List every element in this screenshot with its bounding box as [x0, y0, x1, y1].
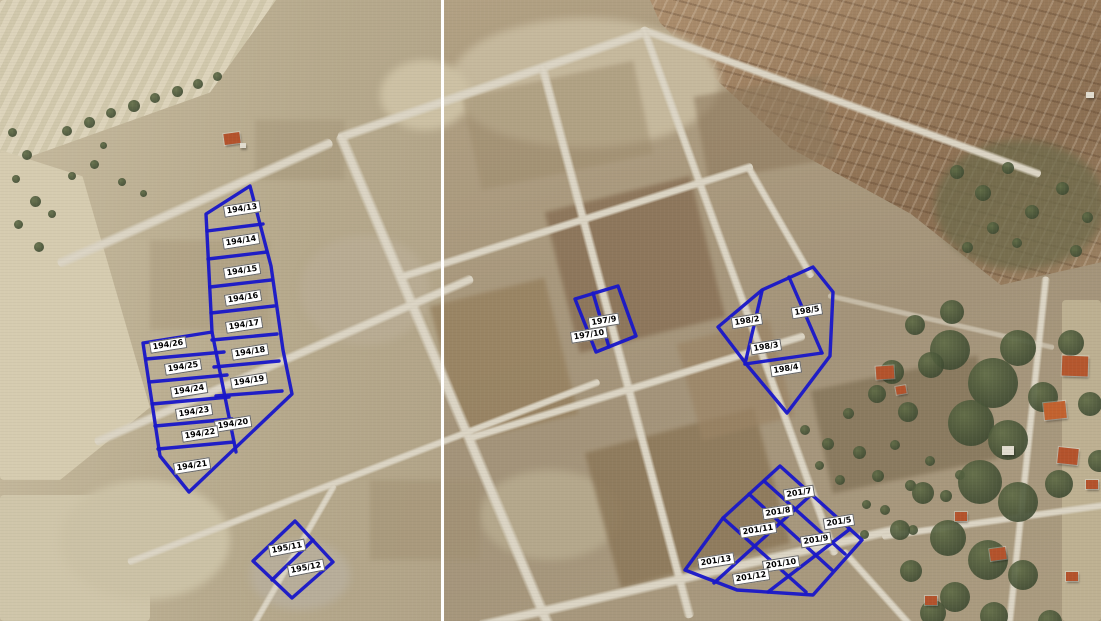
building-red-roof	[989, 547, 1007, 561]
tree	[822, 438, 834, 450]
tree	[30, 196, 41, 207]
tree	[918, 352, 944, 378]
building-red-roof	[1043, 401, 1067, 420]
building-red-roof	[1062, 356, 1089, 377]
tree	[925, 456, 935, 466]
tree	[1025, 205, 1039, 219]
building-red-roof	[1057, 447, 1079, 465]
tree	[868, 385, 886, 403]
building-red-roof	[223, 132, 240, 145]
tree	[940, 490, 952, 502]
tree	[1058, 330, 1084, 356]
tree	[890, 440, 900, 450]
tree	[150, 93, 160, 103]
building-white-roof	[1002, 446, 1014, 455]
tree	[12, 175, 20, 183]
building-white-roof	[1086, 92, 1094, 98]
tree	[68, 172, 76, 180]
tree	[940, 300, 964, 324]
tree	[853, 446, 866, 459]
tree	[905, 315, 925, 335]
tree	[898, 402, 918, 422]
tree	[890, 520, 910, 540]
tree	[872, 470, 884, 482]
scrub-patch	[370, 480, 480, 560]
tree	[128, 100, 140, 112]
tree	[900, 560, 922, 582]
tree	[815, 461, 824, 470]
tree	[962, 242, 973, 253]
tree	[1045, 470, 1073, 498]
farm-field	[60, 480, 230, 600]
tree	[975, 185, 991, 201]
building-red-roof	[955, 512, 967, 521]
tree	[1000, 330, 1036, 366]
tree	[880, 505, 890, 515]
aerial-map: 194/13 194/14 194/15 194/16 194/17 194/1…	[0, 0, 1101, 621]
tree	[90, 160, 99, 169]
tree	[1002, 162, 1014, 174]
tree	[1008, 560, 1038, 590]
tree	[987, 222, 999, 234]
tree	[48, 210, 56, 218]
building-red-roof	[876, 365, 895, 379]
tree	[106, 108, 116, 118]
tree	[14, 220, 23, 229]
tree	[968, 540, 1008, 580]
building-red-roof	[895, 385, 906, 395]
tree	[998, 482, 1038, 522]
tree	[1078, 392, 1101, 416]
photo-seam-line	[441, 0, 444, 621]
tree	[193, 79, 203, 89]
building-shed	[240, 143, 246, 148]
tree	[100, 142, 107, 149]
tree	[84, 117, 95, 128]
tree	[950, 165, 964, 179]
tree	[958, 460, 1002, 504]
building-red-roof	[1066, 572, 1078, 581]
tree	[22, 150, 32, 160]
tree	[860, 530, 869, 539]
tree	[1082, 212, 1093, 223]
tree	[835, 475, 845, 485]
building-red-roof	[1086, 480, 1098, 489]
tree	[1056, 182, 1069, 195]
tree	[213, 72, 222, 81]
tree	[140, 190, 147, 197]
tree	[1070, 245, 1082, 257]
tree	[800, 425, 810, 435]
tree	[172, 86, 183, 97]
tree	[34, 242, 44, 252]
tree	[62, 126, 72, 136]
tree	[118, 178, 126, 186]
tree	[843, 408, 854, 419]
tree	[1012, 238, 1022, 248]
tree	[930, 520, 966, 556]
tree	[862, 500, 871, 509]
tree	[912, 482, 934, 504]
tree	[8, 128, 17, 137]
building-red-roof	[925, 596, 937, 605]
